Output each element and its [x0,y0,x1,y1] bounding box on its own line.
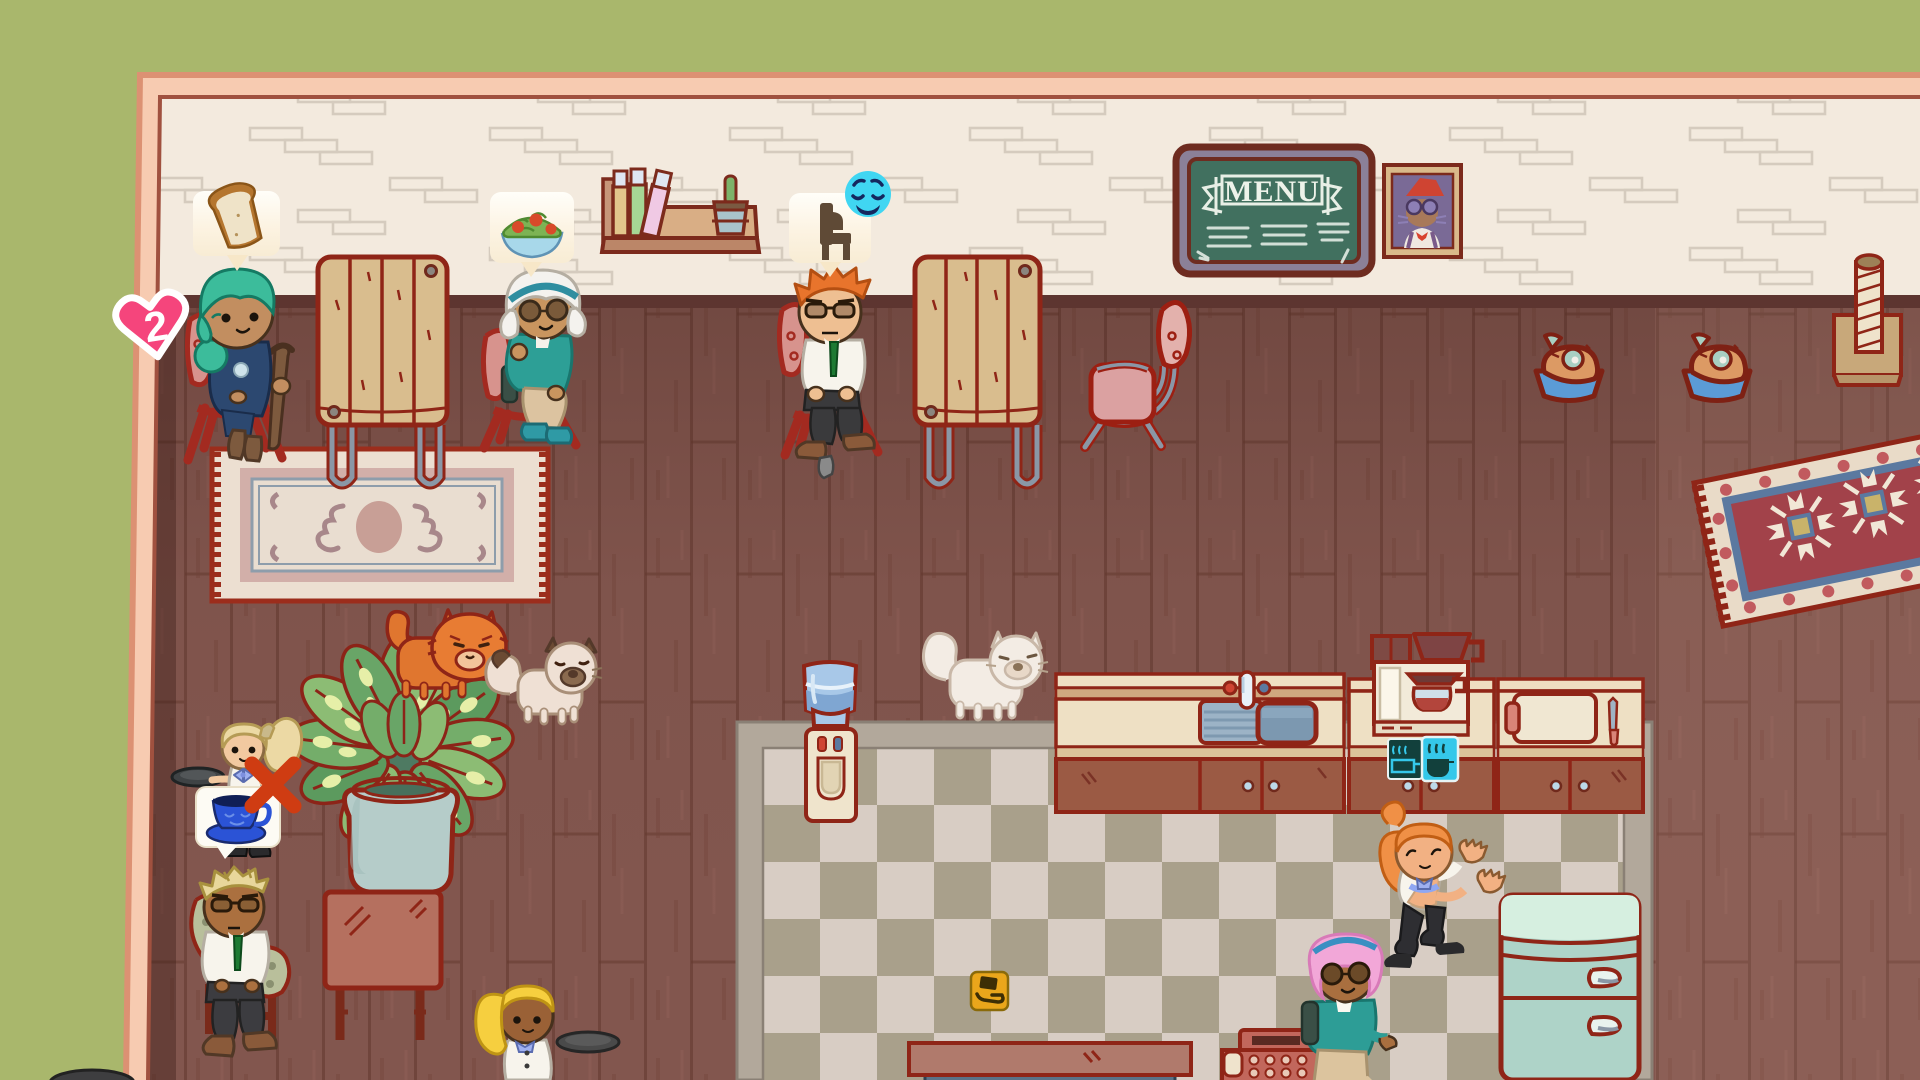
svg-text:MENU: MENU [1224,175,1320,208]
